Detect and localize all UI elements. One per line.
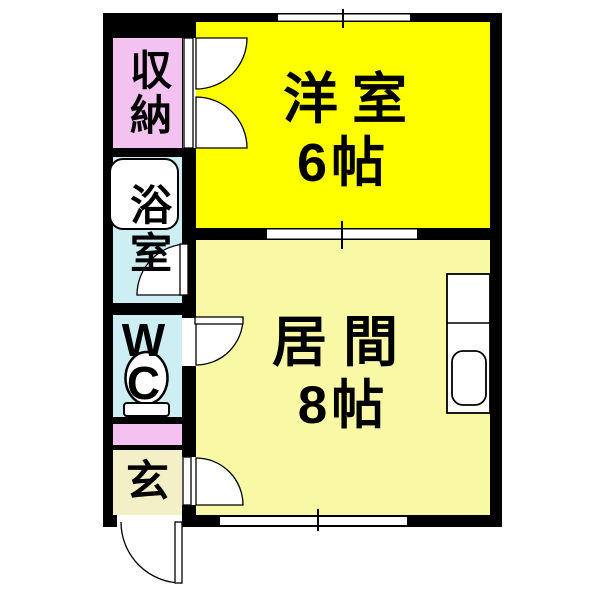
western-room-size: 6帖 xyxy=(196,135,490,191)
entrance-label: 玄 xyxy=(113,452,182,512)
storage-label: 収納 xyxy=(113,40,182,146)
living-room-size: 8帖 xyxy=(196,378,490,432)
western-room-name: 洋室 xyxy=(196,70,490,128)
floor-plan-canvas: 収納 浴室 W C 玄 洋室 6帖 居間 8帖 xyxy=(0,0,600,600)
entrance-door-icon xyxy=(121,522,182,583)
room-hall-strip xyxy=(113,424,182,445)
wc-label: W C xyxy=(109,311,178,413)
living-room-name: 居間 xyxy=(196,314,490,370)
bathroom-label: 浴室 xyxy=(113,162,182,300)
